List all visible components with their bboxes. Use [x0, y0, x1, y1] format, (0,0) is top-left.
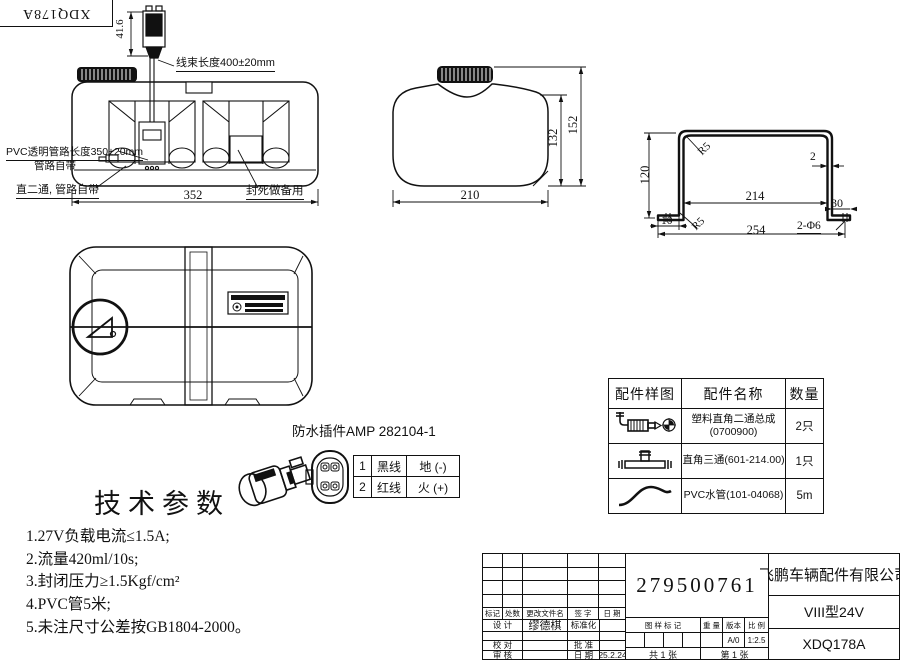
- dim-bracket-left-flange: 10: [661, 215, 673, 227]
- wire-polarity: 火 (+): [407, 477, 460, 498]
- parts-table: 配件样图 配件名称 数量: [608, 378, 824, 514]
- connector-detail-drawing: [235, 445, 355, 515]
- parts-table-row: 塑料直角二通总成 (0700900) 2只: [609, 409, 824, 444]
- designer-name: 缪德棋: [523, 620, 568, 632]
- approve-label: 批 准: [568, 641, 600, 651]
- tech-params-item: 3.封闭压力≥1.5Kgf/cm²: [26, 569, 180, 591]
- rev-header-sign: 签 字: [568, 608, 599, 620]
- dim-connector-height: 41.6: [113, 12, 127, 46]
- stamp-value-row: A/0 1:2.5: [626, 633, 769, 648]
- scale-value: 1:2.5: [745, 633, 769, 648]
- parts-table-row: 直角三通(601-214.00) 1只: [609, 444, 824, 479]
- harness-connector: [143, 6, 165, 58]
- part-qty: 5m: [786, 479, 824, 514]
- bracket-holes-label: 2-Φ6: [797, 220, 821, 234]
- wire-color: 红线: [372, 477, 407, 498]
- wire-table-row: 2 红线 火 (+): [354, 477, 460, 498]
- dim-side-outer-height: 152: [566, 110, 580, 140]
- tech-params-item: 5.未注尺寸公差按GB1804-2000。: [26, 615, 250, 637]
- dim-bracket-inner-width: 214: [735, 189, 775, 204]
- review-label: 审 核: [483, 651, 523, 660]
- wire-color: 黑线: [372, 456, 407, 477]
- part-qty: 2只: [786, 409, 824, 444]
- sealed-spare-label: 封死做备用: [246, 182, 304, 200]
- stamp-label: 图 样 标 记: [626, 618, 701, 633]
- tee-fitting-icon: [609, 444, 682, 479]
- check-label: 校 对: [483, 641, 523, 651]
- parts-header-name: 配件名称: [682, 379, 786, 409]
- tech-params-item: 2.流量420ml/10s;: [26, 547, 138, 569]
- warning-sticker: [228, 292, 288, 314]
- straight-two-way-label: 直二通, 管路自带: [16, 181, 99, 199]
- tech-params-item: 1.27V负载电流≤1.5A;: [26, 524, 170, 546]
- rev-header-file: 更改文件名: [523, 608, 568, 620]
- parts-table-header-row: 配件样图 配件名称 数量: [609, 379, 824, 409]
- dim-bracket-right-flange: 30: [831, 196, 843, 211]
- sheet-row: 共 1 张 第 1 张: [626, 648, 769, 660]
- title-block: 标记 处数 更改文件名 签 字 日 期 设 计 缪德棋 标准化 校 对 批 准 …: [482, 553, 900, 660]
- part-name: PVC水管(101-04068): [682, 479, 786, 514]
- wire-no: 1: [354, 456, 372, 477]
- part-name: 塑料直角二通总成 (0700900): [682, 409, 786, 444]
- tech-params-title: 技术参数: [94, 482, 230, 521]
- dim-bracket-outer-width: 254: [736, 223, 776, 238]
- wire-table: 1 黑线 地 (-) 2 红线 火 (+): [353, 455, 460, 498]
- pvc-pipe-label-line2: 管路自带: [34, 158, 76, 173]
- rev-header-date: 日 期: [599, 608, 626, 620]
- weight-label: 重 量: [701, 618, 723, 633]
- dim-side-inner-height: 132: [546, 123, 560, 153]
- wire-polarity: 地 (-): [407, 456, 460, 477]
- total-sheets: 共 1 张: [626, 648, 701, 660]
- sheet-number: 第 1 张: [701, 648, 769, 660]
- engineering-drawing-sheet: XDQ178A: [0, 0, 900, 660]
- tank-front-view-drawing: [60, 240, 320, 415]
- company-name: 飞鹏车辆配件有限公司: [769, 554, 899, 596]
- connector-front-view: [306, 451, 348, 503]
- tank-top-view-drawing: [0, 0, 340, 240]
- drawing-number: XDQ178A: [769, 629, 899, 658]
- standardization-label: 标准化: [568, 620, 600, 632]
- part-qty: 1只: [786, 444, 824, 479]
- connector-3d-view: [235, 456, 312, 508]
- rev-header-count: 处数: [503, 608, 523, 620]
- parts-table-row: PVC水管(101-04068) 5m: [609, 479, 824, 514]
- scale-label: 比 例: [745, 618, 769, 633]
- version-label: 版本: [723, 618, 745, 633]
- dim-bracket-height: 120: [638, 160, 652, 190]
- parts-header-qty: 数量: [786, 379, 824, 409]
- date-value: 25.2.24: [600, 651, 626, 660]
- wire-no: 2: [354, 477, 372, 498]
- dim-side-width: 210: [447, 188, 493, 203]
- pvc-pipe-icon: [609, 479, 682, 514]
- elbow-two-way-fitting-icon: [609, 409, 682, 444]
- stamp-label-row: 图 样 标 记 重 量 版本 比 例: [626, 618, 769, 633]
- tech-params-item: 4.PVC管5米;: [26, 592, 111, 614]
- side-tank-outline: [393, 84, 548, 186]
- right-pump-well: [203, 101, 289, 168]
- design-label: 设 计: [483, 620, 523, 632]
- date-label: 日 期: [568, 651, 600, 660]
- bracket-profile: [658, 131, 850, 220]
- side-filler-cap: [437, 66, 493, 83]
- revision-grid: 标记 处数 更改文件名 签 字 日 期: [483, 554, 626, 620]
- dim-tank-width: 352: [170, 188, 216, 203]
- parts-header-sample: 配件样图: [609, 379, 682, 409]
- part-name: 直角三通(601-214.00): [682, 444, 786, 479]
- wire-table-row: 1 黑线 地 (-): [354, 456, 460, 477]
- front-tank-outline: [70, 247, 312, 405]
- part-number: 279500761: [626, 554, 769, 618]
- filler-cap: [77, 67, 137, 82]
- harness-length-label: 线束长度400±20mm: [176, 54, 275, 72]
- dim-bracket-thickness: 2: [810, 151, 816, 163]
- connector-title: 防水插件AMP 282104-1: [292, 420, 436, 440]
- version-value: A/0: [723, 633, 745, 648]
- rev-header-mark: 标记: [483, 608, 503, 620]
- signature-grid: 设 计 缪德棋 标准化 校 对 批 准 审 核 日 期 25.2.24: [483, 620, 626, 659]
- model-name: VIII型24V: [769, 596, 899, 629]
